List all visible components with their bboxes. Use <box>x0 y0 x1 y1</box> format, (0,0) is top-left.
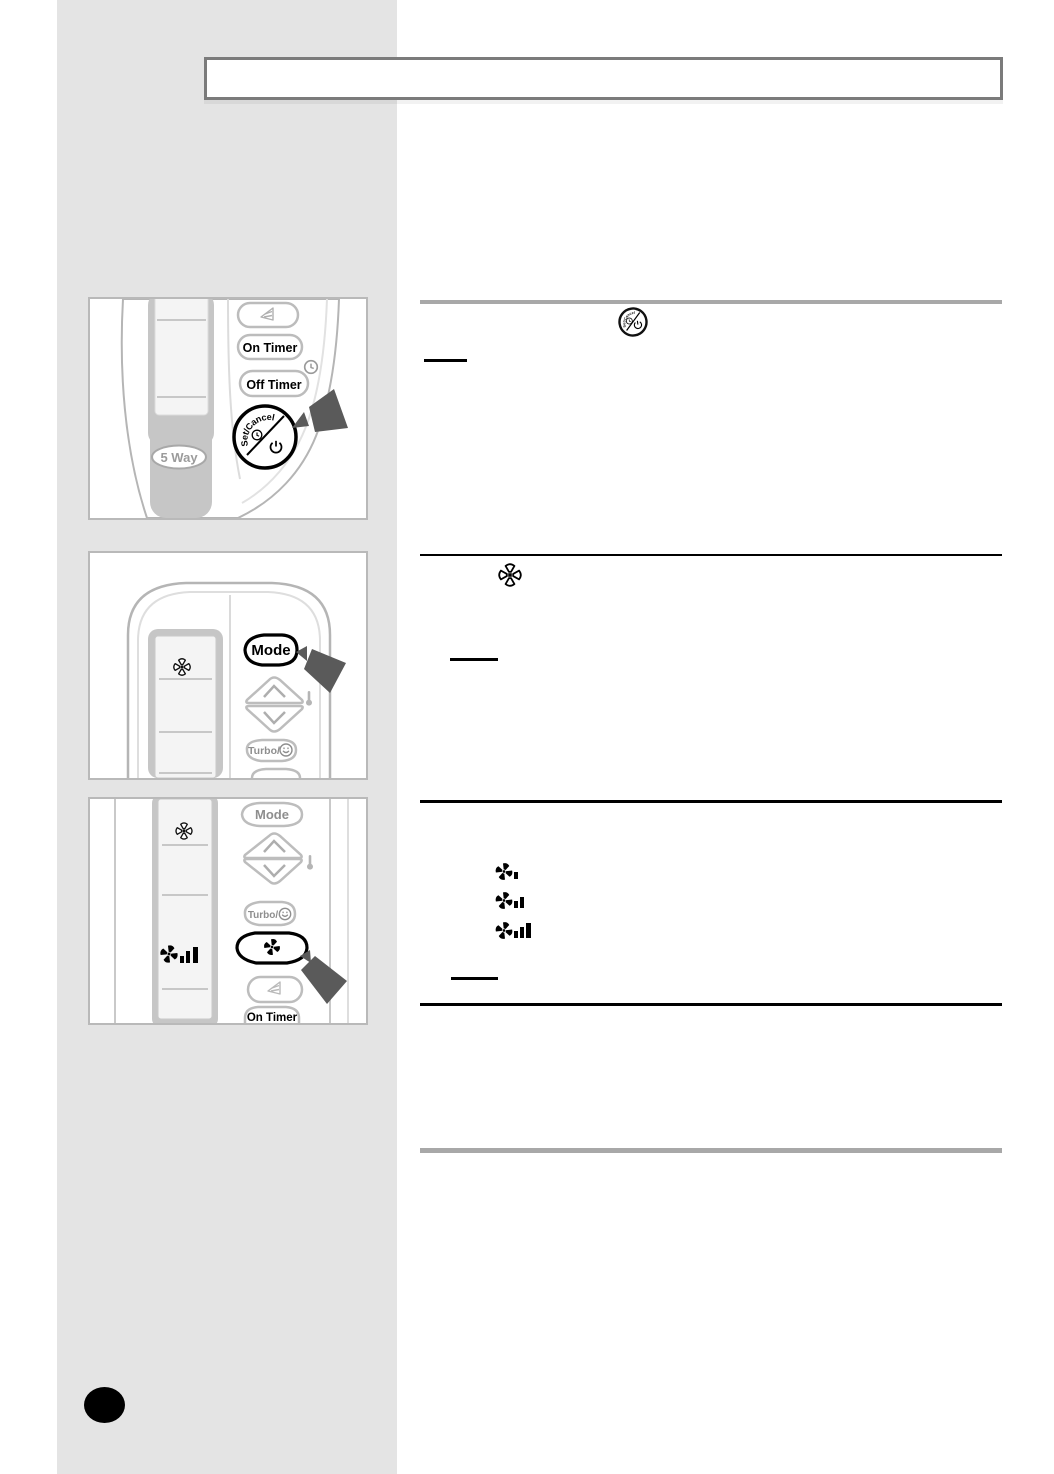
page-number-dot <box>84 1387 125 1423</box>
section-divider-gray <box>420 1148 1002 1153</box>
section-divider-black <box>420 800 1002 803</box>
manual-page: 5 Way On Timer Off Timer Set/Cancel <box>0 0 1054 1474</box>
display-screen <box>155 636 216 778</box>
on-timer-label: On Timer <box>247 1012 298 1023</box>
note-underline <box>450 658 498 661</box>
remote-illustration-fan-speed: Mode Turbo/ On Timer <box>90 799 366 1023</box>
turbo-label: Turbo/ <box>248 910 279 921</box>
air-swing-button <box>238 303 298 327</box>
figure-frame-set-cancel: 5 Way On Timer Off Timer Set/Cancel <box>88 297 368 520</box>
on-timer-label: On Timer <box>243 341 298 355</box>
fan-icon <box>497 561 523 588</box>
mode-label: Mode <box>251 642 290 659</box>
fan-speed-low-icon <box>495 862 521 881</box>
page-title-box <box>204 57 1003 100</box>
section-divider-black <box>420 554 1002 556</box>
note-underline <box>451 977 498 980</box>
fan-speed-high-icon <box>495 921 535 940</box>
off-timer-label: Off Timer <box>246 378 301 392</box>
turbo-label: Turbo/ <box>248 745 280 757</box>
fan-speed-medium-icon <box>495 891 529 910</box>
section-divider-gray <box>420 300 1002 304</box>
figure-frame-fan-speed: Mode Turbo/ On Timer <box>88 797 368 1025</box>
five-way-label: 5 Way <box>160 450 198 465</box>
note-underline <box>424 359 467 362</box>
set-cancel-button-icon: Set/Cancel <box>616 305 650 339</box>
section-divider-black <box>420 1003 1002 1006</box>
remote-illustration-mode: Mode Turbo/ <box>90 553 366 778</box>
display-screen <box>155 299 208 415</box>
air-swing-button <box>248 977 302 1002</box>
mode-label: Mode <box>255 807 289 822</box>
remote-illustration-set-cancel: 5 Way On Timer Off Timer Set/Cancel <box>90 299 366 518</box>
figure-frame-mode: Mode Turbo/ <box>88 551 368 780</box>
